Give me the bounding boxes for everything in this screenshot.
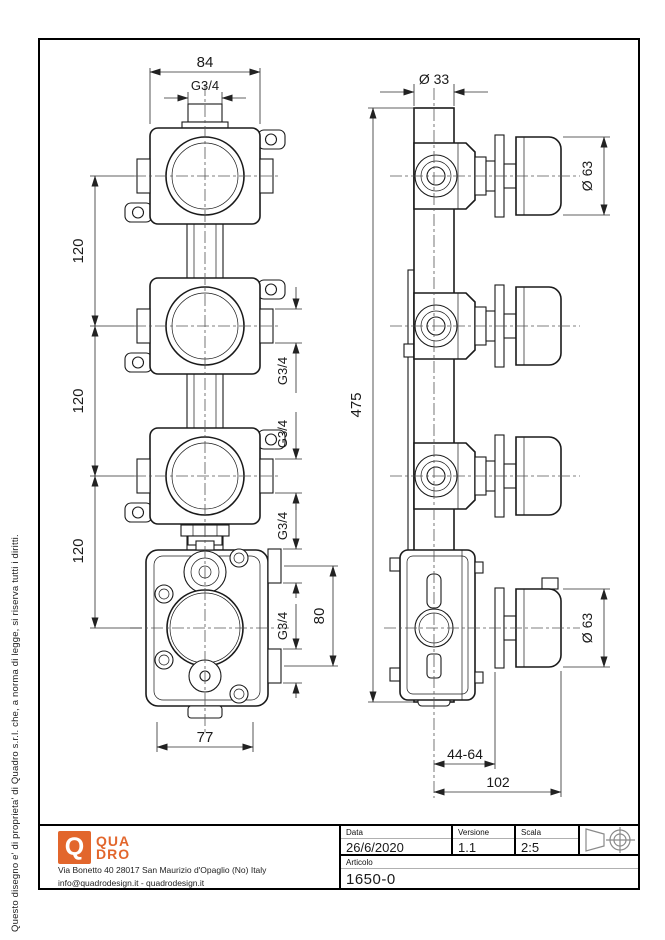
logo-wordmark: QUA DRO: [96, 835, 130, 861]
dim-station-spacing-1: 120: [70, 238, 87, 263]
version-cell: Versione 1.1: [451, 826, 514, 854]
dim-station-spacing-2: 120: [70, 388, 87, 413]
company-info: Q QUA DRO Via Bonetto 40 28017 San Mauri…: [40, 826, 339, 888]
title-block: Data 26/6/2020 Versione 1.1 Scala 2:5: [339, 826, 638, 888]
scale-label: Scala: [516, 826, 578, 839]
date-label: Data: [341, 826, 451, 839]
dim-body-diameter: Ø 33: [419, 71, 450, 87]
date-value: 26/6/2020: [341, 839, 451, 855]
projection-cell: [578, 826, 638, 854]
dim-total-height: 475: [348, 392, 365, 417]
dim-overall-width: 84: [197, 54, 214, 71]
dim-port-thread-1: G3/4: [275, 357, 290, 385]
technical-drawing: 84 G3/4 120 120 120 G3/4 G3/4 G3/4: [38, 38, 640, 824]
dim-knob-diameter-top: Ø 63: [579, 161, 595, 192]
scale-value: 2:5: [516, 839, 578, 855]
dim-station-spacing-3: 120: [70, 538, 87, 563]
dim-port-thread-2: G3/4: [275, 420, 290, 448]
quadro-logo: Q: [58, 831, 91, 864]
dim-outlet-spacing: 80: [311, 608, 328, 625]
article-value: 1650-0: [341, 869, 638, 888]
date-cell: Data 26/6/2020: [341, 826, 451, 854]
scale-cell: Scala 2:5: [514, 826, 578, 854]
dim-body-width-bottom: 77: [197, 729, 214, 746]
logo-letter: Q: [65, 835, 84, 860]
article-label: Articolo: [341, 856, 638, 869]
dim-install-depth-range: 44-64: [447, 746, 483, 762]
version-label: Versione: [453, 826, 514, 839]
dim-knob-diameter-bottom: Ø 63: [579, 613, 595, 644]
copyright-note: Questo disegno e' di proprieta' di Quadr…: [10, 534, 21, 932]
contact-line: info@quadrodesign.it - quadrodesign.it: [58, 878, 333, 890]
dim-port-thread-3: G3/4: [275, 512, 290, 540]
dim-total-depth: 102: [486, 774, 510, 790]
side-view: [384, 88, 580, 798]
logo-word-line2: DRO: [96, 848, 130, 861]
front-view: [125, 84, 290, 732]
first-angle-projection-icon: [580, 827, 638, 853]
article-cell: Articolo 1650-0: [341, 856, 638, 888]
version-value: 1.1: [453, 839, 514, 855]
dim-port-thread-4: G3/4: [275, 612, 290, 640]
dim-top-thread: G3/4: [191, 78, 219, 93]
title-band: Q QUA DRO Via Bonetto 40 28017 San Mauri…: [38, 824, 640, 890]
address-line: Via Bonetto 40 28017 San Maurizio d'Opag…: [58, 865, 333, 877]
